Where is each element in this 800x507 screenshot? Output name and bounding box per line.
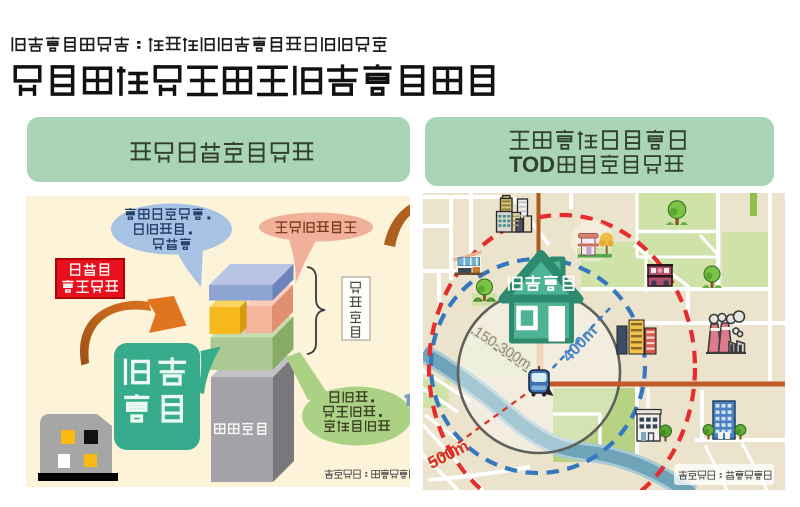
svg-text:TOD: TOD [509, 152, 555, 177]
